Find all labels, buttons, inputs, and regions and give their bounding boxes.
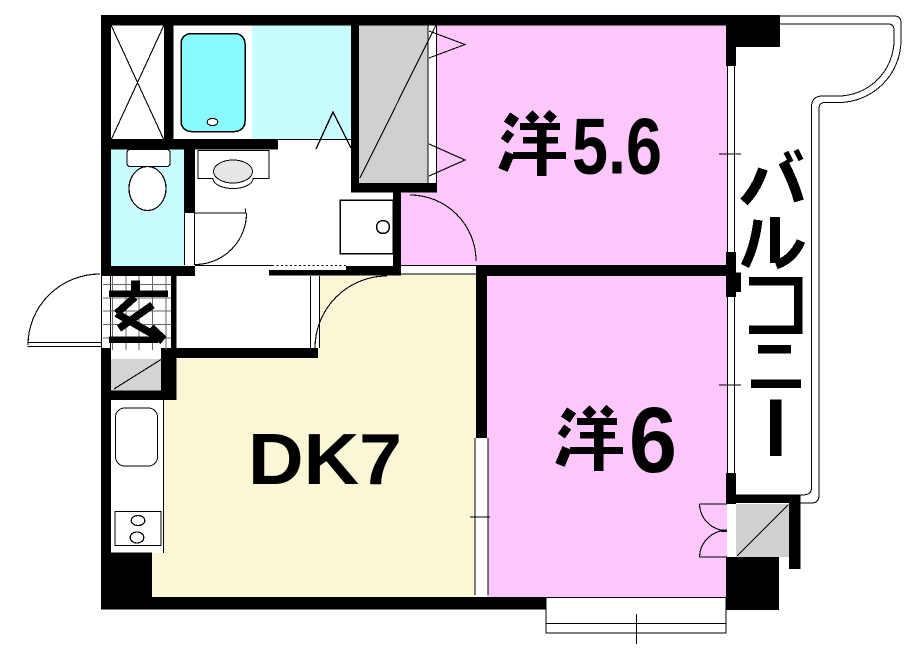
svg-text:DK7: DK7 (248, 420, 402, 500)
svg-text:5.6: 5.6 (572, 102, 662, 191)
svg-text:6: 6 (629, 388, 677, 492)
